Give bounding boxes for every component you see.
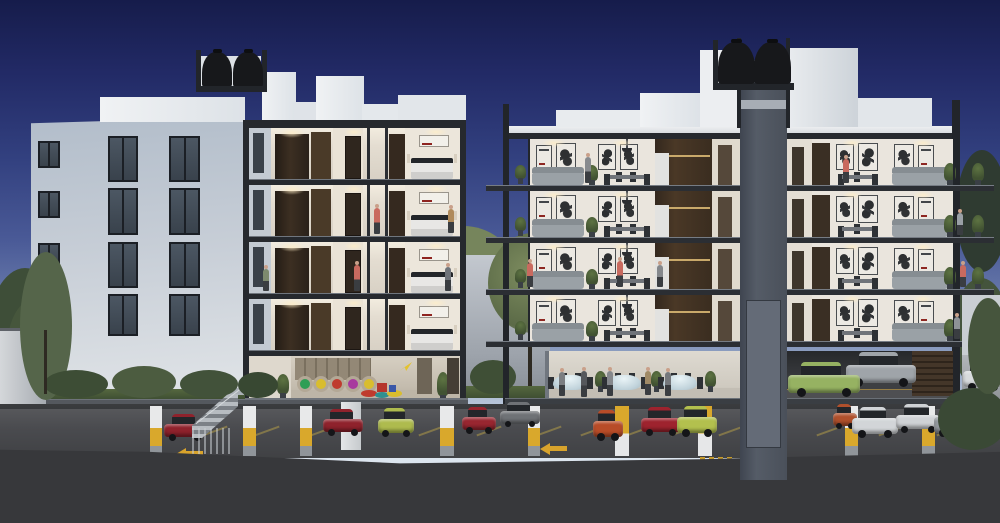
person: [585, 157, 591, 183]
person: [843, 159, 849, 183]
person: [665, 372, 671, 396]
person: [645, 371, 651, 395]
person: [354, 265, 360, 291]
person: [263, 269, 269, 291]
person: [374, 208, 380, 234]
person: [607, 371, 613, 396]
person: [527, 263, 533, 287]
person: [448, 209, 454, 233]
person: [445, 267, 451, 291]
person: [954, 317, 960, 339]
person: [657, 265, 663, 287]
person: [559, 372, 565, 396]
person: [957, 213, 963, 235]
architectural-render-scene: [0, 0, 1000, 523]
person: [581, 371, 587, 397]
people-layer: [0, 0, 1000, 523]
person: [960, 265, 966, 287]
person: [617, 261, 623, 287]
